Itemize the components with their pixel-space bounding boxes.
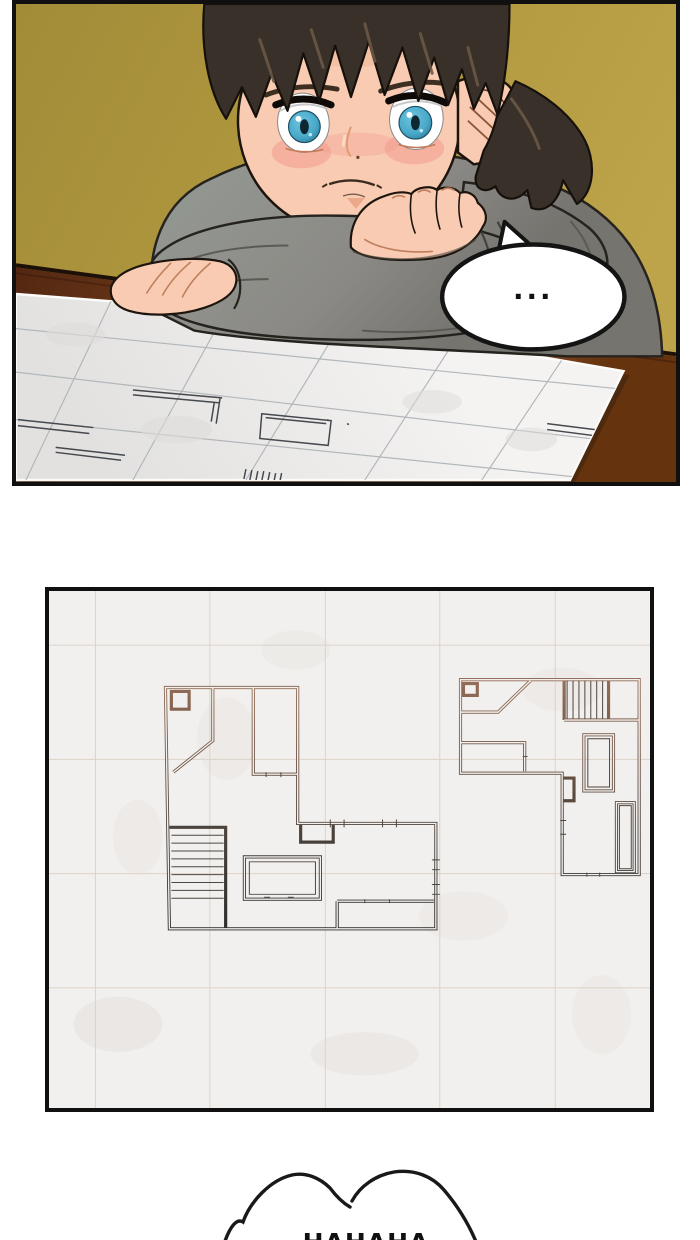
panel1-art: ... xyxy=(16,4,676,482)
panel2-art xyxy=(49,591,650,1108)
shout-bubble: HAHAHA xyxy=(140,1130,560,1240)
panel-blueprint-closeup xyxy=(45,587,654,1112)
panel-boy-at-table: ... xyxy=(12,0,680,486)
ellipsis-text: ... xyxy=(513,273,554,306)
shout-text: HAHAHA xyxy=(303,1228,430,1240)
comic-page: ... xyxy=(0,0,700,1240)
